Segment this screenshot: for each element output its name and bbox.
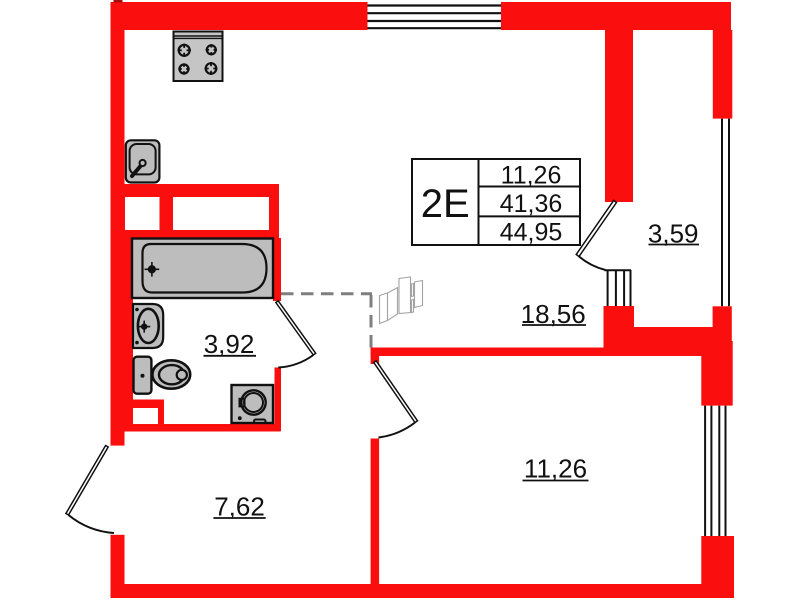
- svg-text:3,92: 3,92: [204, 329, 255, 359]
- svg-text:11,26: 11,26: [524, 454, 587, 484]
- svg-text:2E: 2E: [421, 182, 470, 226]
- svg-text:11,26: 11,26: [501, 162, 562, 190]
- svg-text:41,36: 41,36: [500, 190, 563, 218]
- svg-text:44,95: 44,95: [500, 218, 563, 246]
